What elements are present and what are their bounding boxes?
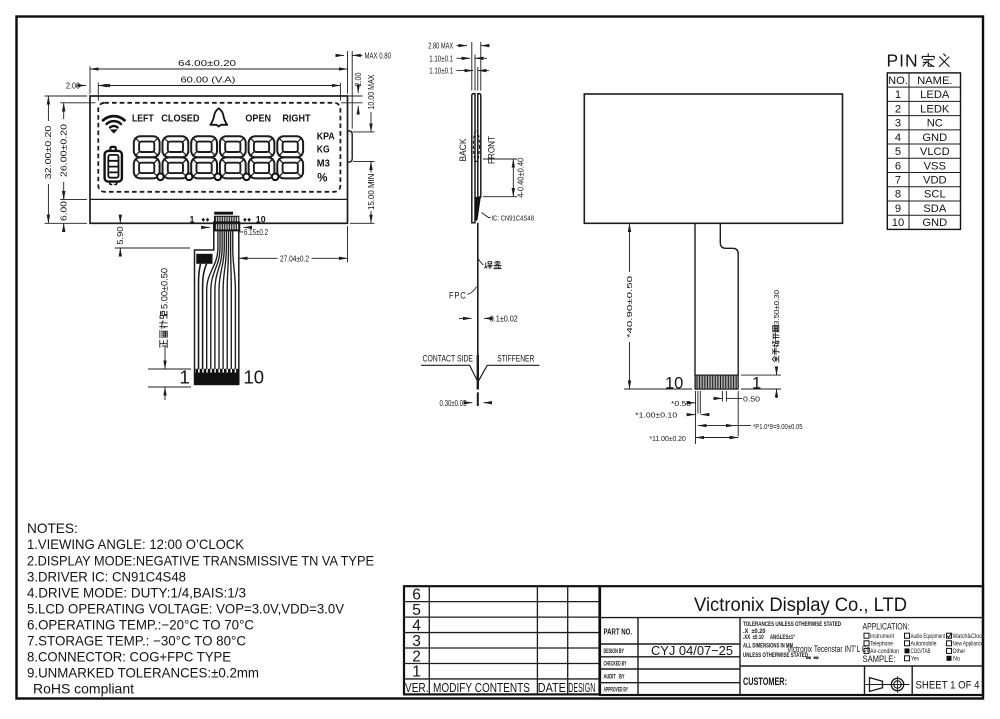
svg-text:Automobile: Automobile (911, 641, 938, 647)
svg-text:GND: GND (922, 217, 947, 229)
svg-text:10: 10 (256, 215, 266, 225)
svg-text:10: 10 (665, 375, 683, 393)
svg-text:7.STORAGE TEMP.: −30°C TO 80°C: 7.STORAGE TEMP.: −30°C TO 80°C (27, 634, 246, 649)
svg-text:DESIGN BY: DESIGN BY (604, 648, 625, 655)
svg-text:1: 1 (190, 215, 195, 225)
svg-text:VDD: VDD (923, 175, 947, 187)
svg-text:9: 9 (895, 203, 901, 215)
svg-text:2.DISPLAY MODE:NEGATIVE TRANSM: 2.DISPLAY MODE:NEGATIVE TRANSMISSIVE TN … (27, 553, 374, 568)
svg-text:CONTACT SIDE: CONTACT SIDE (423, 354, 474, 364)
svg-text:15.00 MIN: 15.00 MIN (366, 174, 376, 211)
svg-text:NAME.: NAME. (917, 75, 952, 87)
svg-text:NC: NC (927, 118, 943, 130)
svg-text:5.00±0.50: 5.00±0.50 (159, 268, 169, 309)
svg-text:9.UNMARKED TOLERANCES:±0.2mm: 9.UNMARKED TOLERANCES:±0.2mm (27, 666, 259, 681)
svg-text:4: 4 (895, 132, 901, 144)
svg-text:1.VIEWING ANGLE: 12:00 O’CLOCK: 1.VIEWING ANGLE: 12:00 O’CLOCK (27, 537, 244, 552)
svg-text:.XX ±0.10 ANGLES±1°: .XX ±0.10 ANGLES±1° (743, 633, 795, 641)
svg-text:6.OPERATING TEMP.:−20°C TO 70°: 6.OPERATING TEMP.:−20°C TO 70°C (27, 618, 254, 633)
svg-text:Yes: Yes (911, 656, 919, 662)
svg-text:GND: GND (922, 132, 947, 144)
svg-text:*11.00±0.20: *11.00±0.20 (650, 434, 686, 443)
svg-text:APPROVED BY: APPROVED BY (604, 687, 629, 694)
svg-text:2.80 MAX: 2.80 MAX (428, 42, 453, 51)
svg-text:7: 7 (895, 175, 901, 187)
svg-text:PIN: PIN (887, 51, 919, 71)
svg-text:1: 1 (412, 664, 421, 681)
svg-text:*P1.0*9=9.00±0.05: *P1.0*9=9.00±0.05 (753, 422, 803, 431)
svg-text:1: 1 (180, 367, 190, 388)
svg-text:2: 2 (895, 103, 901, 115)
svg-text:10: 10 (244, 367, 265, 388)
svg-text:RoHS compliant: RoHS compliant (33, 682, 134, 697)
svg-text:Other: Other (953, 649, 966, 655)
svg-text:1.10±0.1: 1.10±0.1 (429, 67, 453, 76)
svg-text:KPA: KPA (317, 130, 335, 142)
svg-text:0.30±0.05: 0.30±0.05 (440, 399, 467, 408)
svg-text:NOTES:: NOTES: (27, 521, 78, 536)
svg-text:ALL DIMENSIONS IN MM: ALL DIMENSIONS IN MM (743, 643, 793, 650)
svg-text:OPEN: OPEN (245, 113, 271, 124)
svg-text:4: 4 (412, 617, 421, 634)
svg-text:60.00 (V.A): 60.00 (V.A) (181, 74, 236, 84)
svg-text:No: No (953, 656, 961, 662)
svg-text:Audio Equipment: Audio Equipment (911, 634, 946, 640)
svg-text:*40.90±0.50: *40.90±0.50 (625, 276, 634, 338)
svg-text:CHECKED BY: CHECKED BY (604, 661, 627, 668)
svg-text:5: 5 (895, 146, 901, 158)
svg-text:1: 1 (752, 375, 761, 393)
svg-text:Telephone: Telephone (870, 641, 894, 647)
svg-text:3.DRIVER IC: CN91C4S48: 3.DRIVER IC: CN91C4S48 (27, 569, 186, 584)
svg-text:4.DRIVE MODE: DUTY:1/4,BAIS:1/: 4.DRIVE MODE: DUTY:1/4,BAIS:1/3 (27, 586, 246, 601)
svg-text:*1.00±0.10: *1.00±0.10 (635, 411, 677, 420)
svg-text:M3: M3 (317, 157, 330, 169)
svg-text:5.90: 5.90 (115, 226, 125, 244)
svg-text:COG/TAB: COG/TAB (911, 649, 931, 655)
svg-text:3: 3 (895, 118, 901, 130)
svg-text:10: 10 (892, 217, 904, 229)
svg-text:New Appliance: New Appliance (953, 641, 985, 647)
svg-text:Victronix Display Co., LTD: Victronix Display Co., LTD (694, 595, 907, 616)
svg-text:LEDA: LEDA (920, 89, 950, 101)
svg-text:*0.50: *0.50 (671, 399, 691, 408)
svg-text:8: 8 (895, 189, 901, 201)
svg-text:CUSTOMER:: CUSTOMER: (743, 676, 787, 688)
svg-text:DATE: DATE (538, 680, 566, 695)
svg-text:CLOSED: CLOSED (161, 113, 199, 124)
svg-text:RIGHT: RIGHT (282, 113, 311, 124)
svg-text:26.00±0.20: 26.00±0.20 (59, 124, 69, 177)
svg-text:6.15±0.2: 6.15±0.2 (244, 228, 268, 237)
svg-text:32.00±0.20: 32.00±0.20 (43, 125, 53, 179)
svg-text:Instrument: Instrument (870, 634, 894, 640)
svg-text:AUDIT BY: AUDIT BY (604, 674, 625, 681)
svg-text:6: 6 (895, 160, 901, 172)
svg-text:FPC: FPC (449, 290, 467, 301)
svg-text:NO.: NO. (888, 75, 908, 87)
svg-text:8.CONNECTOR: COG+FPC TYPE: 8.CONNECTOR: COG+FPC TYPE (27, 650, 231, 665)
svg-text:0.1±0.02: 0.1±0.02 (490, 315, 518, 324)
svg-text:2.00: 2.00 (66, 81, 80, 91)
svg-text:Watch&Clock: Watch&Clock (953, 634, 986, 640)
svg-text:%: % (317, 173, 327, 185)
svg-text:FRONT: FRONT (487, 136, 497, 164)
svg-text:3: 3 (412, 633, 421, 650)
svg-text:3.50±0.30: 3.50±0.30 (772, 290, 781, 325)
svg-text:SCL: SCL (924, 189, 946, 201)
svg-text:1: 1 (895, 89, 901, 101)
svg-text:VER.: VER. (405, 680, 429, 695)
svg-text:KG: KG (317, 143, 330, 155)
svg-text:APPLICATION:: APPLICATION: (863, 622, 910, 632)
svg-text:4-0.40±0.40: 4-0.40±0.40 (517, 157, 526, 198)
svg-text:6.00: 6.00 (59, 201, 69, 221)
svg-text:CYJ 04/07−25: CYJ 04/07−25 (651, 643, 733, 658)
svg-text:10.00 MAX: 10.00 MAX (366, 74, 376, 109)
svg-text:0.50: 0.50 (743, 394, 760, 403)
svg-text:VSS: VSS (924, 160, 946, 172)
svg-text:DESIGN: DESIGN (568, 681, 595, 695)
svg-text:2.00: 2.00 (353, 72, 363, 86)
svg-text:5.LCD OPERATING VOLTAGE: VOP=3: 5.LCD OPERATING VOLTAGE: VOP=3.0V,VDD=3.… (27, 602, 345, 617)
svg-text:6: 6 (412, 586, 421, 603)
svg-text:Victronix Tecenstar INT’L Co.: Victronix Tecenstar INT’L Co. (787, 644, 872, 654)
svg-text:LEFT: LEFT (132, 113, 154, 124)
svg-text:STIFFENER: STIFFENER (497, 354, 534, 364)
svg-text:SAMPLE:: SAMPLE: (863, 654, 896, 664)
svg-text:SHEET 1 OF 4: SHEET 1 OF 4 (916, 680, 980, 692)
svg-text:VLCD: VLCD (920, 146, 950, 158)
svg-text:MODIFY CONTENTS: MODIFY CONTENTS (433, 680, 530, 695)
svg-text:BACK: BACK (458, 138, 468, 162)
svg-text:64.00±0.20: 64.00±0.20 (178, 58, 236, 68)
svg-text:1.10±0.1: 1.10±0.1 (429, 54, 453, 63)
svg-text:LEDK: LEDK (920, 103, 950, 115)
svg-text:PART NO.: PART NO. (604, 626, 633, 636)
svg-text:MAX 0.80: MAX 0.80 (365, 51, 392, 61)
svg-text:27.04±0.2: 27.04±0.2 (280, 253, 309, 263)
svg-text:SDA: SDA (923, 203, 947, 215)
svg-text:IC: CN91C4S48: IC: CN91C4S48 (492, 214, 535, 223)
